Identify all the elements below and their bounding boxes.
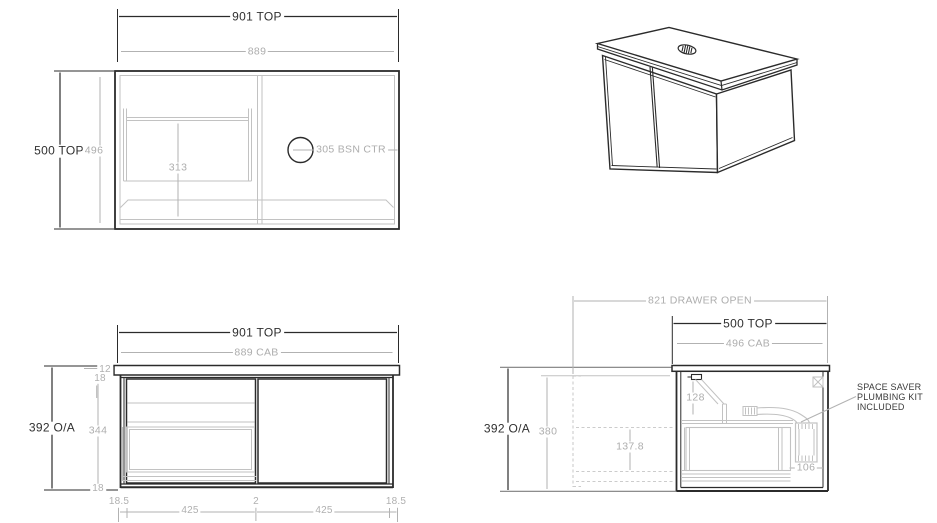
dim-side-trap-width: 106 <box>795 462 817 473</box>
dim-side-waste-drop: 128 <box>684 392 706 403</box>
dim-front-right-margin: 18.5 <box>384 497 408 508</box>
dim-front-top-reveal: 18 <box>92 373 108 384</box>
dim-front-width-cab: 889 CAB <box>232 347 280 358</box>
dim-plan-width-cab: 889 <box>246 46 268 57</box>
technical-drawing-canvas: 901 TOP 889 500 TOP 496 313 305 BSN CTR … <box>0 0 937 523</box>
dim-side-depth-top: 500 TOP <box>721 317 775 330</box>
dim-front-left-margin: 18.5 <box>107 497 131 508</box>
dim-side-depth-cab: 496 CAB <box>724 338 772 349</box>
plumbing-kit-note-line2: PLUMBING KIT <box>857 392 923 402</box>
dim-side-height-overall: 392 O/A <box>482 422 532 435</box>
plumbing-kit-note-line1: SPACE SAVER <box>857 382 923 392</box>
dim-front-bottom-reveal: 18 <box>90 483 106 494</box>
dim-side-drawer-open: 821 DRAWER OPEN <box>646 295 754 306</box>
dim-plan-depth-top: 500 TOP <box>32 145 86 158</box>
dim-plan-drawer-internal: 313 <box>167 162 189 173</box>
plumbing-kit-note: SPACE SAVER PLUMBING KIT INCLUDED <box>857 382 923 412</box>
dim-side-height-cab: 380 <box>537 426 559 437</box>
dim-plan-basin-centre: 305 BSN CTR <box>314 144 388 155</box>
dim-side-drawer-travel: 137.8 <box>614 441 646 452</box>
dim-front-width-top: 901 TOP <box>230 326 284 339</box>
plumbing-kit-note-line3: INCLUDED <box>857 402 923 412</box>
dim-front-door-right: 425 <box>313 506 334 517</box>
dim-front-centre-gap: 2 <box>251 497 261 508</box>
adjuster-icon <box>813 377 823 387</box>
dim-plan-depth-cab: 496 <box>83 145 105 156</box>
dim-plan-width-top: 901 TOP <box>230 10 284 23</box>
vanity-drawing <box>0 0 937 523</box>
dim-front-door-left: 425 <box>179 506 200 517</box>
isometric-view-drawing <box>598 28 798 173</box>
dim-front-height-internal: 344 <box>87 425 109 436</box>
dim-front-height-overall: 392 O/A <box>27 422 77 435</box>
plan-view-drawing <box>54 9 399 229</box>
